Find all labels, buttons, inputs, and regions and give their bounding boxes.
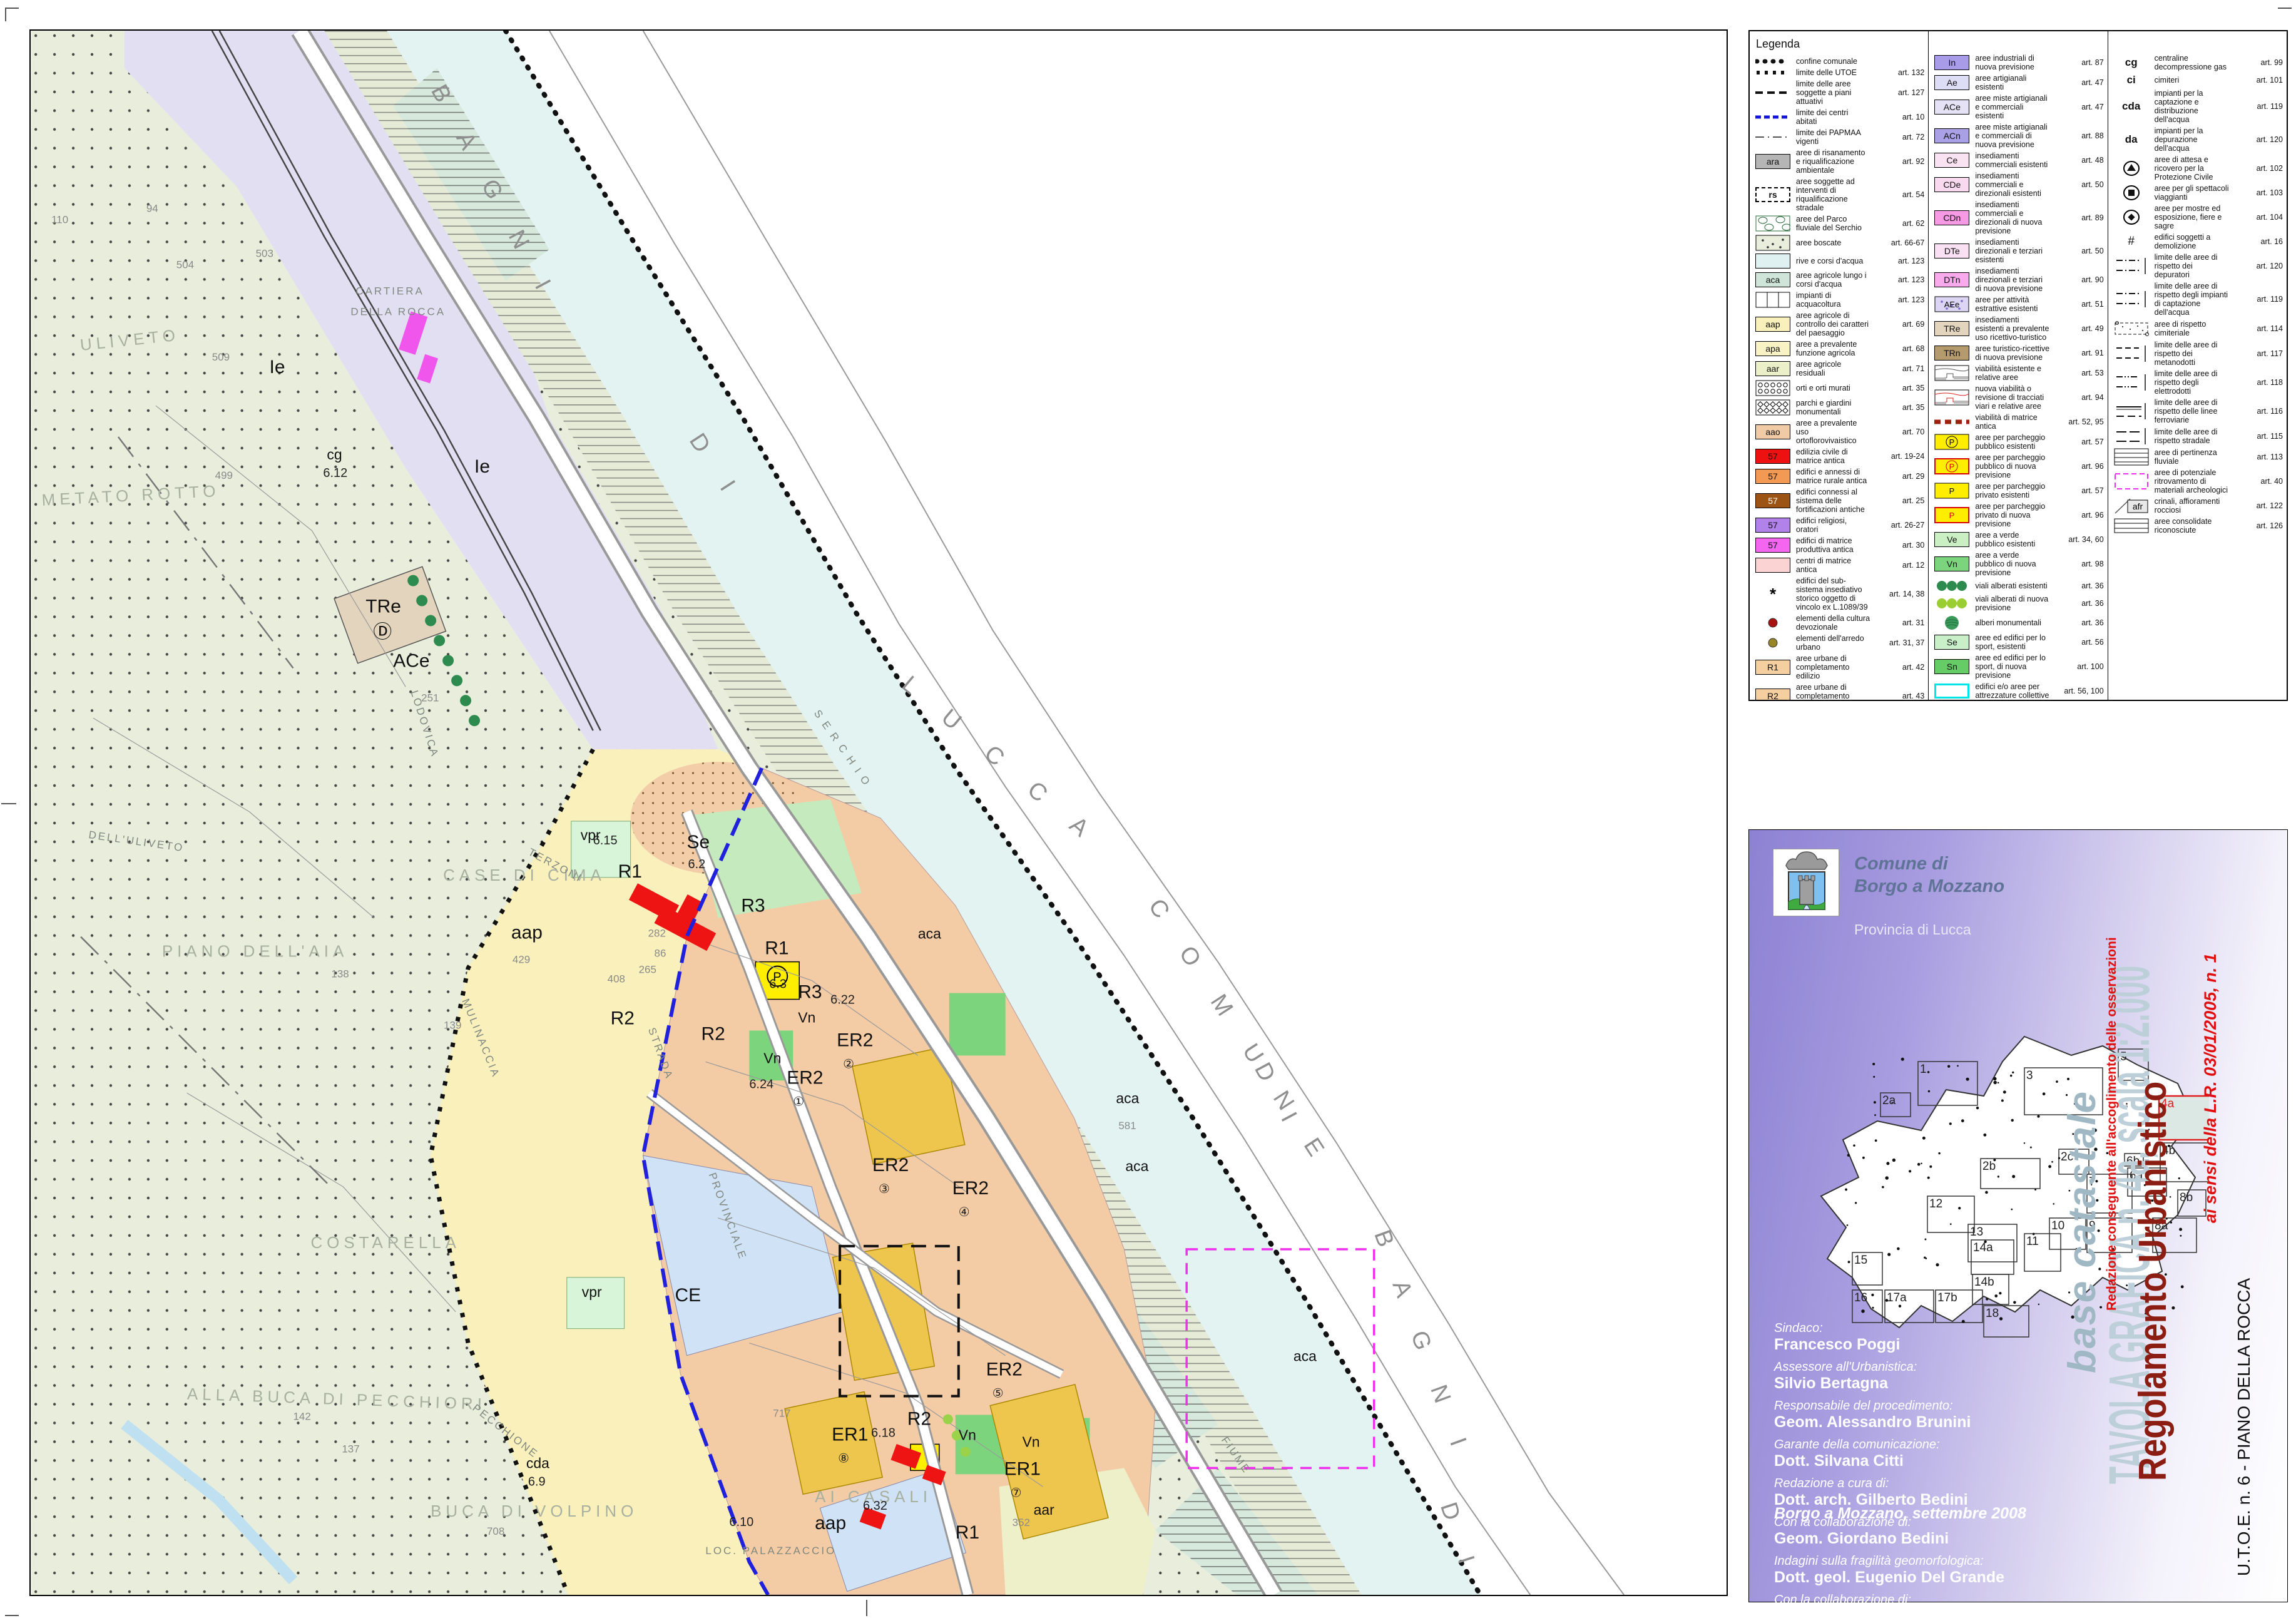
legend-item-label: aree miste artigianali e commerciali di … — [1975, 123, 2049, 149]
legend-title: Legenda — [1756, 38, 1924, 51]
legend-item-article: art. 66-67 — [1875, 238, 1924, 247]
map-label: R2 — [907, 1408, 931, 1429]
map-label: 6.2 — [688, 858, 705, 871]
map-label: 408 — [608, 973, 625, 985]
legend-item: centri di matrice anticaart. 12 — [1755, 555, 1924, 575]
index-frame-label: 13 — [1970, 1226, 1983, 1239]
box-swatch: CDe — [1934, 177, 1970, 192]
legend-item-label: orti e orti murati — [1796, 384, 1870, 392]
legend-item: limite delle aree di rispetto delle line… — [2113, 397, 2283, 426]
legend-item: acaaree agricole lungo i corsi d'acquaar… — [1755, 270, 1924, 290]
svg-text:P: P — [1949, 438, 1955, 447]
legend-item-label: aree a prevalente uso ortoflorovivaistic… — [1796, 419, 1870, 445]
title-block: Comune di Borgo a Mozzano Provincia di L… — [1748, 829, 2288, 1602]
dots-box-swatch: AEe — [1934, 296, 1970, 312]
legend-item-label: aree consolidate riconosciute — [2155, 517, 2229, 535]
legend-item-label: aree per parcheggio pubblico esistenti — [1975, 433, 2049, 451]
consol-swatch — [2113, 517, 2150, 535]
legend-item: CDeinsediamenti commerciali e direzional… — [1934, 170, 2103, 199]
legend-item: nuova viabilità o revisione di tracciati… — [1934, 383, 2103, 412]
dash-darkred-swatch — [1934, 417, 1970, 426]
credit-role: Responsabile del procedimento: — [1774, 1399, 2004, 1413]
legend-item: aree di pertinenza fluvialeart. 113 — [2113, 447, 2283, 467]
bracket-ddd-swatch — [2113, 373, 2150, 392]
legend-item-article: art. 120 — [2234, 262, 2283, 270]
map-label: Se — [686, 832, 710, 852]
legend-item-label: aree a verde pubblico esistenti — [1975, 531, 2049, 548]
box-swatch: ara — [1755, 154, 1791, 169]
legend-item: cicimiteriart. 101 — [2113, 73, 2283, 88]
legend-item-article: art. 123 — [1875, 295, 1924, 304]
map-label: aap — [815, 1513, 846, 1533]
cadastral-map: P — [31, 31, 1727, 1595]
legend-item: Paree per parcheggio privato di nuova pr… — [1934, 501, 2103, 530]
map-label: 429 — [513, 954, 530, 966]
legend-item: CDninsediamenti commerciali e direzional… — [1934, 199, 2103, 237]
map-label: 265 — [639, 964, 656, 976]
legend-item-label: centraline decompressione gas — [2155, 54, 2229, 71]
circles-pat-swatch — [1755, 380, 1791, 396]
legend-item-article: art. 36 — [2055, 618, 2104, 627]
legend-item-label: edifici e annessi di matrice rurale anti… — [1796, 468, 1870, 485]
legend-item-label: centri di matrice antica — [1796, 556, 1870, 574]
map-label: Ie — [270, 357, 285, 377]
legend-item: limite dei centri abitatiart. 10 — [1755, 107, 1924, 127]
legend-item: limite delle aree di rispetto dei depura… — [2113, 252, 2283, 280]
legend-item: rsaree soggette ad interventi di riquali… — [1755, 176, 1924, 213]
legend-item: 57edifici connessi al sistema delle fort… — [1755, 486, 1924, 515]
legend-item-article: art. 116 — [2234, 407, 2283, 416]
box-swatch — [1755, 558, 1791, 573]
legend-item-label: rive e corsi d'acqua — [1796, 257, 1870, 265]
legend-item-label: aree turistico-ricettive di nuova previs… — [1975, 344, 2049, 362]
legend-item: Paree per parcheggio pubblico di nuova p… — [1934, 452, 2103, 481]
legend-column-2: Inaree industriali di nuova previsionear… — [1928, 31, 2107, 700]
dashdot-gray-swatch — [1755, 133, 1791, 141]
map-label: R2 — [701, 1023, 725, 1044]
credit-name: Geom. Francesco Del Grande — [1774, 1607, 2004, 1623]
map-label: aca — [1293, 1348, 1317, 1364]
title-law-ref: ai sensi della L.R. 03/01/2005, n. 1 — [2201, 953, 2220, 1223]
legend-item-article: art. 120 — [2234, 135, 2283, 144]
legend-item: alberi monumentaliart. 36 — [1934, 613, 2103, 632]
box-swatch: Sn — [1934, 659, 1970, 674]
legend-item-article: art. 30 — [1875, 541, 1924, 550]
bracket-road-swatch — [2113, 427, 2150, 446]
afr-swatch: afr — [2113, 497, 2150, 515]
legend-item-label: limite delle aree soggette a piani attua… — [1796, 79, 1870, 106]
legend-item-article: art. 114 — [2234, 324, 2283, 333]
legend-item: 57edifici e annessi di matrice rurale an… — [1755, 466, 1924, 486]
legend-item: cgcentraline decompressione gasart. 99 — [2113, 53, 2283, 73]
legend-item-label: crinali, affioramenti rocciosi — [2155, 497, 2229, 515]
legend-item-article: art. 99 — [2234, 58, 2283, 67]
legend-item: ACnaree miste artigianali e commerciali … — [1934, 121, 2103, 150]
legend-item: R2aree urbane di completamento edilizioa… — [1755, 682, 1924, 700]
legend-item: aree di potenziale ritrovamento di mater… — [2113, 467, 2283, 496]
box-swatch: R2 — [1755, 689, 1791, 700]
code-swatch: cg — [2113, 56, 2150, 69]
legend-item: 57edilizia civile di matrice anticaart. … — [1755, 446, 1924, 466]
legend-item-label: limite dei PAPMAA vigenti — [1796, 128, 1870, 146]
legend-item: 57edifici di matrice produttiva anticaar… — [1755, 535, 1924, 555]
map-label: 6.22 — [830, 993, 855, 1007]
legend-item-article: art. 57 — [2055, 486, 2104, 495]
legend-item: Vnaree a verde pubblico di nuova previsi… — [1934, 550, 2103, 578]
cem-swatch — [2113, 319, 2150, 338]
legend-item-label: aree di rispetto cimiteriale — [2155, 320, 2229, 337]
box-swatch: 57 — [1755, 538, 1791, 553]
legend-item: Inaree industriali di nuova previsionear… — [1934, 53, 2103, 73]
map-label: ER2 — [952, 1178, 989, 1199]
legend-item: viali alberati esistentiart. 36 — [1934, 578, 2103, 593]
legend-item-article: art. 62 — [1875, 219, 1924, 228]
map-label: ACe — [393, 650, 429, 671]
legend-panel: Legenda confine comunalelimite delle UTO… — [1748, 30, 2288, 701]
map-label: aca — [1125, 1158, 1148, 1174]
map-label: 581 — [1118, 1120, 1136, 1132]
legend-column-1: Legenda confine comunalelimite delle UTO… — [1750, 31, 1928, 700]
map-label: R2 — [611, 1008, 635, 1028]
road-e-swatch — [1934, 365, 1970, 381]
legend-item-label: impianti per la depurazione dell'acqua — [2155, 126, 2229, 153]
box-swatch: aao — [1755, 424, 1791, 439]
box-swatch: 57 — [1755, 493, 1791, 508]
legend-item-article: art. 42 — [1875, 663, 1924, 672]
legend-item-article: art. 25 — [1875, 496, 1924, 505]
vlines-swatch — [1755, 292, 1791, 308]
map-label: 86 — [655, 948, 666, 960]
box-swatch: R1 — [1755, 660, 1791, 675]
map-label: COSTARELLA — [310, 1234, 460, 1252]
legend-item-article: art. 35 — [1875, 384, 1924, 392]
legend-item-label: elementi dell'arredo urbano — [1796, 634, 1870, 652]
bracket-d-swatch — [2113, 344, 2150, 363]
box-swatch: 57 — [1755, 469, 1791, 484]
legend-item-article: art. 123 — [1875, 275, 1924, 284]
map-label: aca — [1116, 1090, 1139, 1106]
crop-mark — [5, 8, 19, 9]
legend-item-label: insediamenti direzionali e terziari di n… — [1975, 267, 2049, 293]
3circ-swatch — [1934, 580, 1970, 592]
box-swatch: aar — [1755, 361, 1791, 376]
legend-item-label: aree boscate — [1796, 238, 1870, 247]
legend-item-label: limite dei centri abitati — [1796, 108, 1870, 126]
rs-swatch: rs — [1755, 187, 1791, 202]
map-label: Vn — [1023, 1433, 1040, 1450]
index-frame-label: 17b — [1937, 1291, 1957, 1304]
map-label: CE — [675, 1285, 702, 1306]
map-label: R1 — [765, 938, 788, 959]
legend-item-article: art. 102 — [2234, 164, 2283, 173]
legend-item-article: art. 89 — [2055, 213, 2104, 222]
legend-item-label: aree per parcheggio privato esistenti — [1975, 482, 2049, 499]
legend-item: edifici e/o aree per attrezzature collet… — [1934, 681, 2103, 700]
legend-item-label: aree a prevalente funzione agricola — [1796, 340, 1870, 357]
legend-item: #edifici soggetti a demolizioneart. 16 — [2113, 232, 2283, 252]
dots-box-swatch — [1755, 235, 1791, 251]
map-label: ③ — [879, 1182, 890, 1196]
dash-blue-swatch — [1755, 113, 1791, 121]
legend-item-label: aree industriali di nuova previsione — [1975, 54, 2049, 71]
box-swatch: In — [1934, 55, 1970, 70]
box-swatch: ACn — [1934, 128, 1970, 143]
map-label: 6.12 — [323, 466, 347, 480]
legend-item-article: art. 36 — [2055, 599, 2104, 608]
legend-item-article: art. 47 — [2055, 103, 2104, 111]
3circ-swatch — [1934, 597, 1970, 610]
p-priv-e-swatch: P — [1934, 483, 1970, 499]
box-swatch: 57 — [1755, 449, 1791, 464]
legend-item-label: aree di attesa e ricovero per la Protezi… — [2155, 155, 2229, 182]
legend-item-article: art. 54 — [1875, 190, 1924, 199]
box-swatch: DTe — [1934, 243, 1970, 259]
map-label: 142 — [293, 1410, 310, 1422]
legend-item-article: art. 70 — [1875, 428, 1924, 436]
legend-item: 57edifici religiosi, oratoriart. 26-27 — [1755, 515, 1924, 535]
legend-item-label: viali alberati esistenti — [1975, 581, 2049, 590]
map-label: ① — [793, 1095, 804, 1108]
dash-black-swatch — [1755, 88, 1791, 97]
crop-mark — [5, 8, 6, 21]
diamonds-pat-swatch — [1755, 399, 1791, 416]
legend-item-label: edifici e/o aree per attrezzature collet… — [1975, 682, 2049, 700]
code-swatch: da — [2113, 133, 2150, 146]
legend-item-label: edilizia civile di matrice antica — [1796, 448, 1870, 465]
legend-item-label: insediamenti commerciali esistenti — [1975, 151, 2049, 169]
legend-item-article: art. 126 — [2234, 521, 2283, 530]
legend-item: limite delle aree di rispetto dei metano… — [2113, 339, 2283, 368]
index-frame-label: 14b — [1974, 1276, 1994, 1289]
map-label: R1 — [618, 861, 642, 882]
legend-item-article: art. 51 — [2055, 300, 2104, 309]
map-label: Ⓓ — [373, 622, 392, 642]
map-label: ② — [843, 1057, 854, 1071]
legend-item-label: aree ed edifici per lo sport, di nuova p… — [1975, 653, 2049, 680]
legend-item-label: aree urbane di completamento edilizio — [1796, 683, 1870, 700]
legend-item-label: alberi monumentali — [1975, 618, 2049, 627]
p-pub-n-swatch: P — [1934, 458, 1970, 474]
legend-item: limite delle aree di rispetto degli elet… — [2113, 368, 2283, 397]
map-label: 6.18 — [871, 1426, 895, 1440]
bracket-dd-swatch — [2113, 290, 2150, 309]
legend-item: daimpianti per la depurazione dell'acqua… — [2113, 125, 2283, 154]
index-frame-label: 16 — [1854, 1291, 1867, 1304]
date-label: Borgo a Mozzano, settembre 2008 — [1774, 1505, 2026, 1523]
mag-box-swatch — [2113, 473, 2150, 490]
legend-item-article: art. 115 — [2234, 432, 2283, 441]
index-frame-label: 14a — [1973, 1241, 1993, 1254]
legend-item-label: limite delle aree di rispetto degli elet… — [2155, 369, 2229, 396]
map-label: LOC. PALAZZACCIO — [705, 1545, 836, 1557]
legend-item-label: parchi e giardini monumentali — [1796, 399, 1870, 416]
legend-item-article: art. 94 — [2055, 393, 2104, 402]
legend-item-label: aree per mostre ed esposizione, fiere e … — [2155, 204, 2229, 230]
legend-item-label: aree per parcheggio pubblico di nuova pr… — [1975, 453, 2049, 479]
map-label: 717 — [773, 1407, 790, 1419]
box-swatch: aap — [1755, 317, 1791, 332]
map-label: aca — [918, 926, 941, 942]
circ-dia-swatch — [2113, 209, 2150, 225]
legend-item-article: art. 119 — [2234, 295, 2283, 304]
map-label: R3 — [741, 896, 765, 916]
legend-item-label: impianti di acquacoltura — [1796, 291, 1870, 309]
map-label: Vn — [798, 1009, 815, 1025]
legend-item-article: art. 92 — [1875, 157, 1924, 166]
line-sqdots-swatch — [1755, 68, 1791, 77]
legend-item: aree consolidate riconosciuteart. 126 — [2113, 516, 2283, 536]
crop-mark — [2278, 8, 2292, 9]
svg-text:P: P — [1949, 511, 1955, 520]
box-swatch: Vn — [1934, 556, 1970, 571]
index-frame-label: 12 — [1929, 1197, 1942, 1211]
map-label: 110 — [51, 214, 68, 226]
map-label: 352 — [1013, 1517, 1030, 1528]
map-label: ER1 — [1004, 1458, 1041, 1479]
map-label: ER2 — [787, 1067, 823, 1088]
map-label: 6.10 — [729, 1515, 753, 1529]
legend-item-label: limite delle aree di rispetto degli impi… — [2155, 282, 2229, 317]
map-label: DELLA ROCCA — [350, 305, 446, 317]
box-swatch: ACe — [1934, 100, 1970, 115]
crop-mark — [1, 803, 16, 804]
map-label: R1 — [956, 1522, 979, 1543]
title-red-note: Redazione conseguente all'accoglimento d… — [2105, 937, 2120, 1311]
legend-item: *edifici del sub-sistema insediativo sto… — [1755, 575, 1924, 613]
legend-item-article: art. 40 — [2234, 477, 2283, 486]
credit-role: Garante della comunicazione: — [1774, 1438, 2004, 1452]
legend-item-label: aree a verde pubblico di nuova prevision… — [1975, 551, 2049, 577]
legend-item-article: art. 71 — [1875, 364, 1924, 373]
legend-item-article: art. 50 — [2055, 247, 2104, 255]
svg-text:P: P — [1949, 462, 1955, 471]
road-n-swatch — [1934, 389, 1970, 406]
map-label: 6.9 — [528, 1475, 546, 1488]
legend-item-label: aree per attività estrattive esistenti — [1975, 295, 2049, 313]
legend-item: TReinsediamenti esistenti a prevalente u… — [1934, 314, 2103, 343]
legend-item-article: art. 34, 60 — [2055, 535, 2104, 544]
map-label: ④ — [959, 1206, 970, 1219]
legend-item-article: art. 53 — [2055, 369, 2104, 377]
index-frame-label: 8b — [2180, 1191, 2193, 1204]
map-label: 137 — [342, 1443, 359, 1455]
comune-line2: Borgo a Mozzano — [1854, 875, 2004, 898]
box-swatch: DTn — [1934, 272, 1970, 287]
legend-item: ACearee miste artigianali e commerciali … — [1934, 93, 2103, 121]
crop-mark — [866, 1600, 867, 1616]
legend-item: DTninsediamenti direzionali e terziari d… — [1934, 265, 2103, 294]
circ-tri-swatch — [2113, 160, 2150, 177]
legend-item-label: elementi della cultura devozionale — [1796, 614, 1870, 632]
map-label: ER1 — [832, 1424, 868, 1445]
index-frame-label: 11 — [2026, 1235, 2039, 1248]
box-swatch: TRn — [1934, 346, 1970, 361]
legend-item: limite dei PAPMAA vigentiart. 72 — [1755, 127, 1924, 147]
legend-item-article: art. 118 — [2234, 378, 2283, 387]
code-swatch: ci — [2113, 74, 2150, 86]
legend-item-label: aree ed edifici per lo sport, esistenti — [1975, 633, 2049, 651]
legend-item: limite delle aree di rispetto stradalear… — [2113, 426, 2283, 447]
legend-item-label: impianti per la captazione e distribuzio… — [2155, 89, 2229, 124]
legend-item: Ceinsediamenti commerciali esistentiart.… — [1934, 150, 2103, 170]
legend-item-label: aree urbane di completamento edilizio — [1796, 654, 1870, 680]
zone-vn — [949, 993, 1006, 1056]
legend-item-label: edifici connessi al sistema delle fortif… — [1796, 488, 1870, 514]
svg-text:AEe: AEe — [1944, 300, 1960, 309]
legend-item-label: aree agricole lungo i corsi d'acqua — [1796, 271, 1870, 289]
map-label: R3 — [798, 982, 822, 1003]
legend-item: Searee ed edifici per lo sport, esistent… — [1934, 632, 2103, 652]
legend-item-article: art. 31 — [1875, 618, 1924, 627]
legend-item: aararee agricole residualiart. 71 — [1755, 359, 1924, 379]
legend-item-article: art. 113 — [2234, 453, 2283, 461]
legend-item: orti e orti muratiart. 35 — [1755, 379, 1924, 397]
credit-name: Geom. Alessandro Brunini — [1774, 1413, 2004, 1431]
legend-item-article: art. 90 — [2055, 275, 2104, 284]
legend-item: impianti di acquacolturaart. 123 — [1755, 290, 1924, 310]
legend-item-article: art. 98 — [2055, 560, 2104, 568]
legend-item-article: art. 52, 95 — [2055, 417, 2104, 426]
title-base-catastale: base catastale — [2060, 1090, 2105, 1373]
legend-item-article: art. 57 — [2055, 438, 2104, 446]
legend-item-label: insediamenti direzionali e terziari esis… — [1975, 238, 2049, 264]
map-label: ⑧ — [838, 1451, 849, 1465]
map-frame: P — [29, 29, 1728, 1596]
credit-role: Assessore all'Urbanistica: — [1774, 1360, 2004, 1375]
provincia-label: Provincia di Lucca — [1854, 921, 1971, 938]
legend-item-article: art. 56 — [2055, 638, 2104, 647]
legend-item-article: art. 31, 37 — [1875, 638, 1924, 647]
legend-item-article: art. 101 — [2234, 76, 2283, 84]
legend-item-article: art. 119 — [2234, 102, 2283, 111]
hash-swatch: # — [2113, 235, 2150, 248]
map-label: ER2 — [986, 1359, 1023, 1380]
legend-item-article: art. 10 — [1875, 113, 1924, 121]
legend-item-label: confine comunale — [1796, 57, 1870, 66]
legend-item-article: art. 127 — [1875, 88, 1924, 97]
box-swatch: aca — [1755, 272, 1791, 287]
map-label: 251 — [421, 692, 439, 704]
legend-item-label: edifici di matrice produttiva antica — [1796, 536, 1870, 554]
legend-item-label: cimiteri — [2155, 76, 2229, 84]
svg-text:P: P — [1949, 486, 1955, 496]
legend-item-label: nuova viabilità o revisione di tracciati… — [1975, 384, 2049, 411]
legend-item-label: limite delle aree di rispetto dei metano… — [2155, 340, 2229, 367]
box-swatch: Ce — [1934, 153, 1970, 168]
map-label: cda — [526, 1455, 549, 1471]
legend-item: limite delle aree soggette a piani attua… — [1755, 78, 1924, 107]
credit-role: Con la collaborazione di: — [1774, 1593, 2004, 1607]
legend-item-article: art. 56, 100 — [2055, 687, 2104, 695]
map-label: PIANO DELL'AIA — [162, 943, 348, 961]
bracket-dd-swatch — [2113, 257, 2150, 275]
box-swatch: 57 — [1755, 518, 1791, 533]
credit-name: Francesco Poggi — [1774, 1336, 2004, 1354]
map-label: ER2 — [837, 1030, 873, 1050]
cyanbox-swatch — [1934, 684, 1970, 699]
credit-role: Sindaco: — [1774, 1321, 2004, 1336]
map-label: 509 — [212, 351, 230, 363]
legend-item-label: aree soggette ad interventi di riqualifi… — [1796, 177, 1870, 212]
legend-item: DTeinsediamenti direzionali e terziari e… — [1934, 237, 2103, 265]
map-label: aap — [511, 923, 543, 943]
credits: Sindaco:Francesco PoggiAssessore all'Urb… — [1774, 1315, 2004, 1623]
map-label: 708 — [487, 1525, 504, 1537]
legend-item-article: art. 88 — [2055, 131, 2104, 140]
asterisk-swatch: * — [1755, 585, 1791, 604]
map-label: 282 — [648, 928, 666, 939]
map-label: 139 — [444, 1019, 461, 1031]
